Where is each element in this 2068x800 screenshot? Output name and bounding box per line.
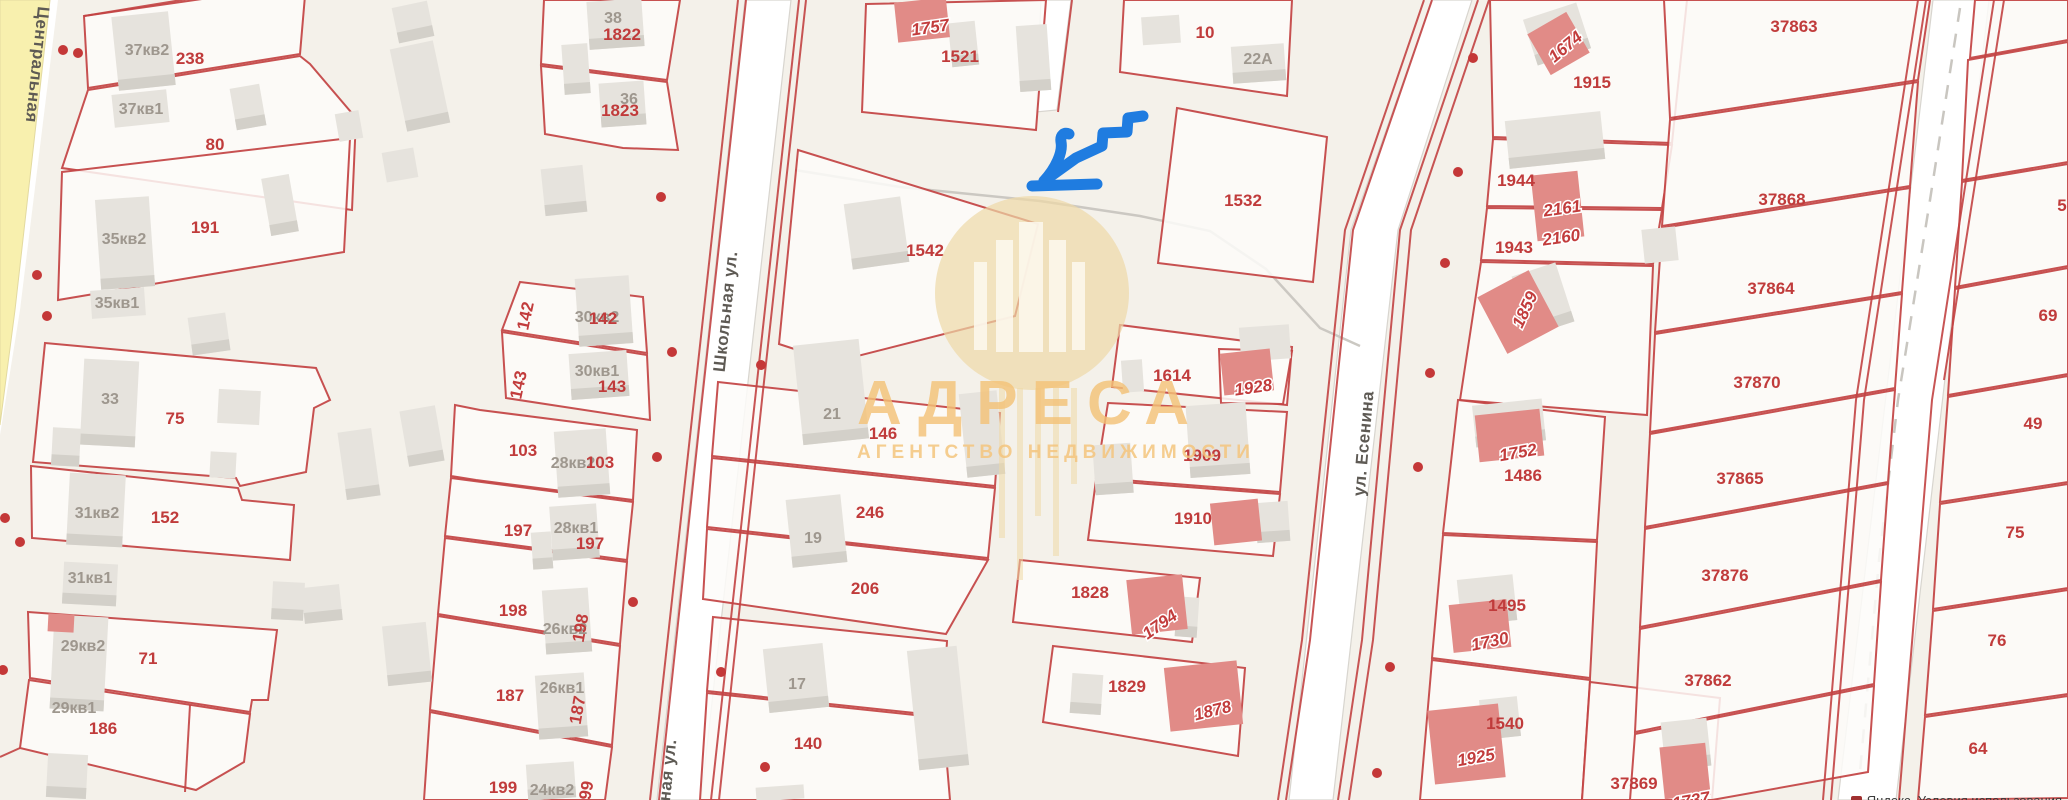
building — [1505, 111, 1605, 169]
watermark-logo-streak — [1035, 388, 1041, 516]
vertex-dot — [716, 667, 726, 677]
building — [531, 531, 554, 569]
building — [541, 165, 588, 216]
parcel-label: 1915 — [1573, 73, 1611, 92]
vertex-dot — [1440, 258, 1450, 268]
building-registered — [1210, 499, 1262, 546]
parcel-label: 146 — [869, 424, 897, 443]
parcel-76[interactable] — [1925, 590, 2068, 715]
parcel-label: 1943 — [1495, 238, 1533, 257]
building-label: 17 — [788, 676, 806, 693]
parcel-label: 10 — [1196, 23, 1215, 42]
watermark-logo-streak — [1017, 388, 1023, 580]
watermark-logo-bar — [1072, 262, 1085, 350]
parcel-label: 75 — [2006, 523, 2025, 542]
parcel-label: 1828 — [1071, 583, 1109, 602]
building — [46, 753, 88, 799]
parcel-label: 103 — [586, 453, 614, 472]
watermark-logo-streak — [1071, 388, 1077, 484]
vertex-dot — [1372, 768, 1382, 778]
building — [51, 427, 81, 466]
vertex-dot — [760, 762, 770, 772]
vertex-dot — [1468, 53, 1478, 63]
parcel-label: 1521 — [941, 47, 979, 66]
vertex-dot — [1413, 462, 1423, 472]
parcel-label: 29кв1 — [52, 700, 97, 717]
vertex-dot — [656, 192, 666, 202]
attribution-text: Яндекс. Условия использования — [1867, 793, 2062, 800]
building — [209, 451, 236, 478]
vertex-dot — [1385, 662, 1395, 672]
parcel-label: 64 — [1969, 739, 1988, 758]
annotation-arrow — [1032, 184, 1097, 186]
parcel-label: 75 — [166, 409, 185, 428]
parcel-label: 142 — [589, 309, 617, 328]
building-label: 26кв1 — [540, 680, 585, 697]
parcel-label: 37862 — [1684, 671, 1731, 690]
parcel-label: 187 — [496, 686, 524, 705]
vertex-dot — [652, 452, 662, 462]
watermark-logo-bar — [1049, 240, 1066, 352]
building — [561, 43, 590, 95]
parcel-label: 37869 — [1610, 774, 1657, 793]
building — [844, 196, 910, 269]
vertex-dot — [42, 311, 52, 321]
building — [382, 147, 419, 182]
parcel-label: 191 — [191, 218, 219, 237]
parcel-label: 1540 — [1486, 714, 1524, 733]
parcel-5[interactable] — [1955, 164, 2068, 287]
parcel-label: 69 — [2039, 306, 2058, 325]
building — [1016, 24, 1052, 92]
building — [392, 1, 435, 44]
parcel-label: 49 — [2024, 414, 2043, 433]
building — [271, 581, 305, 621]
parcel-label: 76 — [1988, 631, 2007, 650]
building-label: 37кв1 — [119, 101, 164, 118]
map-provider-icon — [1851, 796, 1862, 800]
parcel-label: 186 — [89, 719, 117, 738]
parcel-label: 1944 — [1497, 171, 1535, 190]
parcel-label: 37865 — [1716, 469, 1763, 488]
parcel-label: 1614 — [1153, 366, 1191, 385]
parcel-label: 199 — [489, 778, 517, 797]
cadastral-map: 37кв237кв135кв235кв13331кв231кв129кв2383… — [0, 0, 2068, 800]
watermark-logo-streak — [999, 388, 1005, 538]
parcel-75[interactable] — [1933, 484, 2068, 609]
watermark-logo-bar — [974, 262, 987, 350]
parcel-label: 37870 — [1733, 373, 1780, 392]
parcel-label: 103 — [509, 441, 537, 460]
parcel-label: 199 — [574, 779, 598, 800]
parcel-label: 5 — [2057, 196, 2066, 215]
parcel-label: 37863 — [1770, 17, 1817, 36]
vertex-dot — [58, 45, 68, 55]
parcel-label: 197 — [504, 521, 532, 540]
building-label: 33 — [101, 391, 119, 408]
parcel-label: 1532 — [1224, 191, 1262, 210]
parcel-label: 152 — [151, 508, 179, 527]
building-label: 24кв2 — [530, 782, 575, 799]
building-label: 37кв2 — [125, 42, 170, 59]
building-registered — [48, 613, 75, 632]
building-label: 31кв2 — [75, 505, 120, 522]
parcel-label: 246 — [856, 503, 884, 522]
parcel-label: 1910 — [1174, 509, 1212, 528]
parcel-label: 1542 — [906, 241, 944, 260]
parcel-49[interactable] — [1940, 376, 2068, 502]
building — [301, 584, 343, 624]
building-label: 35кв1 — [95, 295, 140, 312]
vertex-dot — [32, 270, 42, 280]
building — [1641, 226, 1678, 263]
building-label: 29кв2 — [61, 638, 106, 655]
building — [382, 622, 432, 686]
parcel-label: 1823 — [601, 101, 639, 120]
map-canvas[interactable]: 37кв237кв135кв235кв13331кв231кв129кв2383… — [0, 0, 2068, 800]
parcel-label: 80 — [206, 135, 225, 154]
building — [1070, 673, 1104, 715]
building-label: 35кв2 — [102, 231, 147, 248]
parcel-label: 37864 — [1747, 279, 1795, 298]
parcel-label: 140 — [794, 734, 822, 753]
vertex-dot — [1425, 368, 1435, 378]
parcel-label: 71 — [139, 649, 158, 668]
parcel-label: 1495 — [1488, 596, 1526, 615]
building — [1121, 359, 1144, 392]
parcel-label: 1829 — [1108, 677, 1146, 696]
parcel-label: 143 — [598, 377, 626, 396]
building-label: 19 — [804, 530, 822, 547]
parcel-label: 197 — [576, 534, 604, 553]
building-label: 22A — [1243, 51, 1273, 68]
parcel-label: 238 — [176, 49, 204, 68]
parcel-label: 1822 — [603, 25, 641, 44]
vertex-dot — [15, 537, 25, 547]
building — [793, 339, 869, 445]
building-label: 21 — [823, 406, 841, 423]
vertex-dot — [1453, 167, 1463, 177]
vertex-dot — [73, 48, 83, 58]
parcel-label: 198 — [499, 601, 527, 620]
building — [335, 110, 363, 142]
parcel-label: 37868 — [1758, 190, 1805, 209]
building — [1141, 15, 1181, 46]
building — [1092, 443, 1133, 496]
parcel-69[interactable] — [1948, 268, 2068, 395]
building — [188, 313, 231, 356]
watermark-logo-bar — [996, 240, 1013, 352]
building-label: 31кв1 — [68, 570, 113, 587]
parcel-label: 37876 — [1701, 566, 1748, 585]
attribution-link[interactable]: Яндекс. Условия использования — [1851, 793, 2062, 800]
watermark-logo-streak — [1053, 388, 1059, 556]
parcel-label: 1486 — [1504, 466, 1542, 485]
vertex-dot — [756, 360, 766, 370]
watermark-logo-bar — [1019, 222, 1043, 352]
building — [217, 389, 261, 425]
vertex-dot — [628, 597, 638, 607]
parcel-label: 1909 — [1183, 446, 1221, 465]
vertex-dot — [0, 513, 10, 523]
parcel-label: 206 — [851, 579, 879, 598]
vertex-dot — [667, 347, 677, 357]
building — [1186, 402, 1251, 478]
